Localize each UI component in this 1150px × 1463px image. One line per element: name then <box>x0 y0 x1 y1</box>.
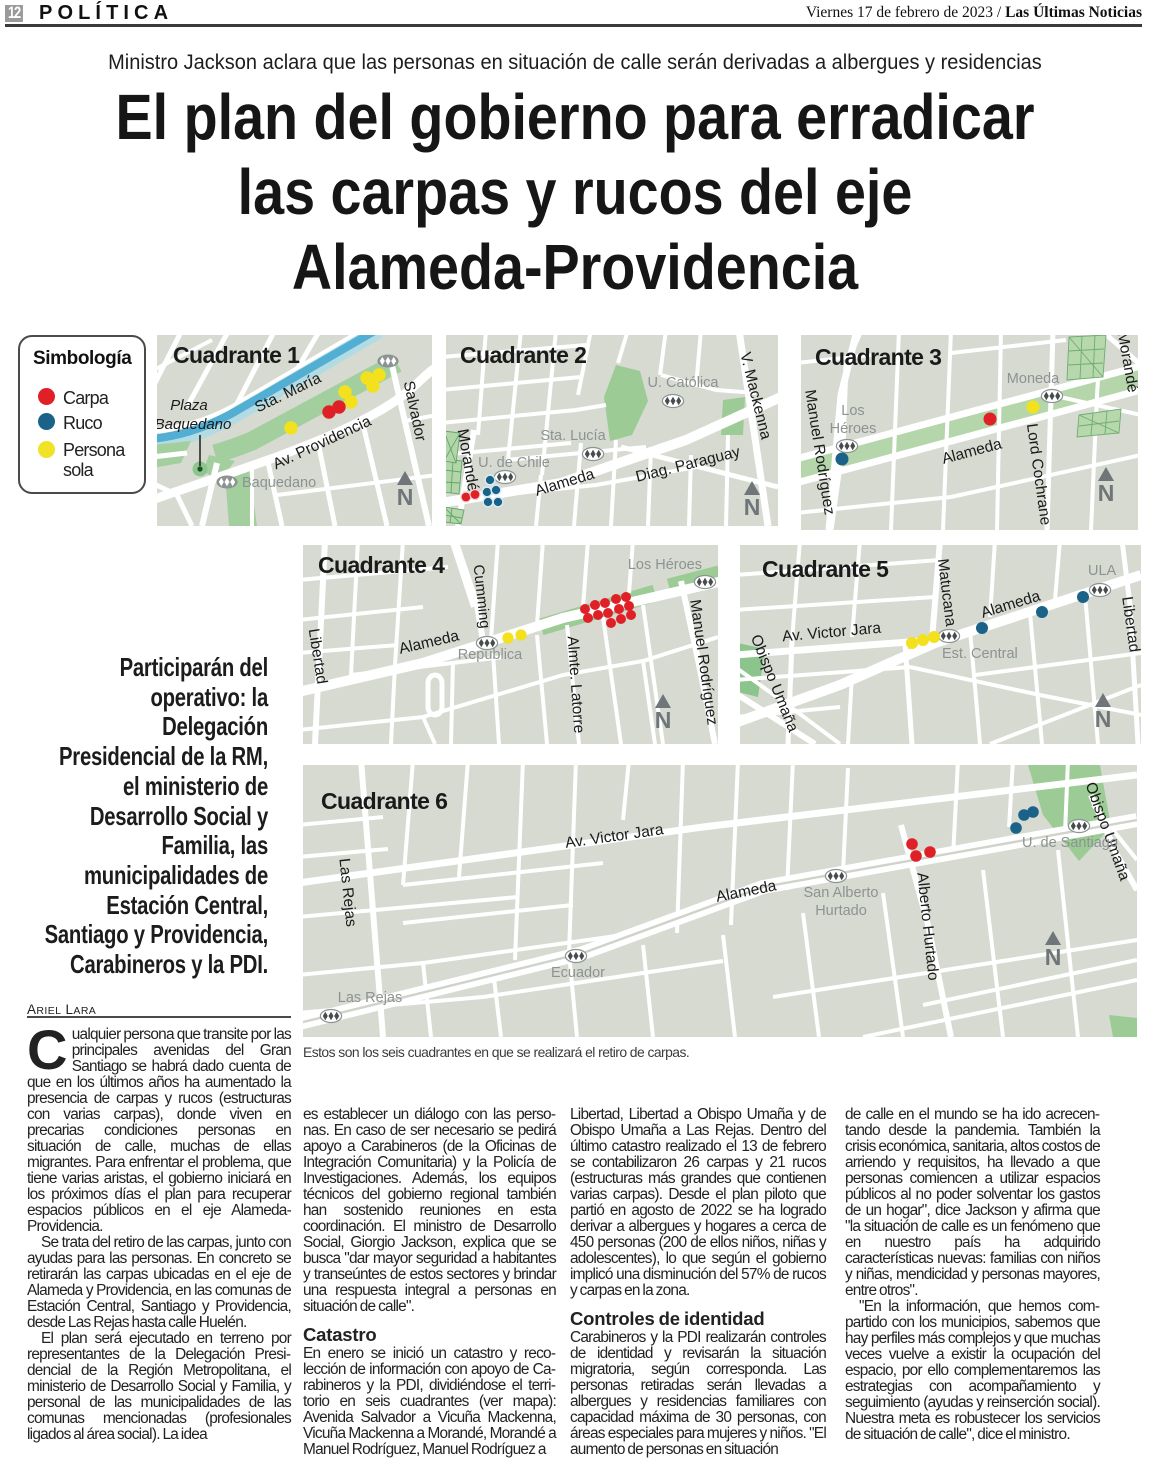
svg-text:Baquedano: Baquedano <box>242 475 316 491</box>
svg-text:Cuadrante 5: Cuadrante 5 <box>762 556 889 582</box>
svg-text:U. de Santiago: U. de Santiago <box>1022 835 1118 851</box>
svg-text:Moneda: Moneda <box>1007 371 1060 387</box>
svg-text:Cuadrante 3: Cuadrante 3 <box>815 344 941 370</box>
svg-text:San Alberto: San Alberto <box>804 885 879 901</box>
svg-text:Hurtado: Hurtado <box>815 903 867 919</box>
svg-text:Las Rejas: Las Rejas <box>338 990 402 1006</box>
svg-text:Est. Central: Est. Central <box>942 646 1018 662</box>
svg-text:Héroes: Héroes <box>830 421 877 437</box>
svg-text:U. Católica: U. Católica <box>648 375 720 391</box>
svg-text:Baquedano: Baquedano <box>157 416 231 433</box>
svg-text:Cuadrante 1: Cuadrante 1 <box>173 342 300 368</box>
svg-text:Los: Los <box>841 403 864 419</box>
svg-text:Sta. Lucía: Sta. Lucía <box>540 428 606 444</box>
svg-text:Cuadrante 2: Cuadrante 2 <box>460 342 586 368</box>
svg-text:ULA: ULA <box>1088 563 1117 579</box>
svg-text:Cuadrante 6: Cuadrante 6 <box>321 788 447 814</box>
svg-text:U. de Chile: U. de Chile <box>478 455 550 471</box>
svg-text:Plaza: Plaza <box>170 397 208 414</box>
svg-text:Cuadrante 4: Cuadrante 4 <box>318 552 445 578</box>
svg-text:Ecuador: Ecuador <box>551 965 605 981</box>
svg-text:Los Héroes: Los Héroes <box>628 557 702 573</box>
